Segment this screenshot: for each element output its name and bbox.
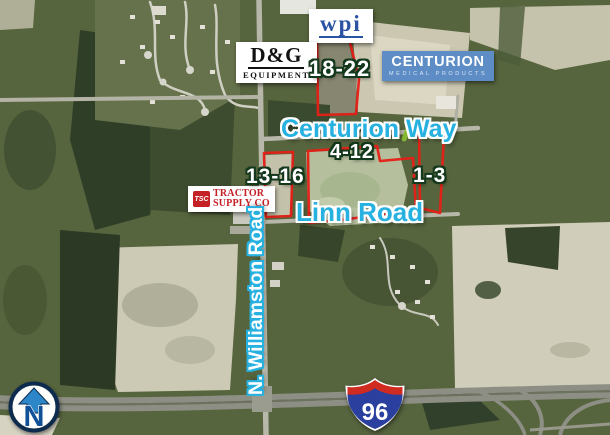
wpi-logo-text: wpi <box>319 12 363 38</box>
lot-label-1-3: 1-3 <box>413 164 446 188</box>
lot-label-18-22: 18-22 <box>309 56 370 82</box>
centurion-medical-logo: CENTURION MEDICAL PRODUCTS <box>382 51 494 81</box>
wpi-logo: wpi <box>309 9 373 43</box>
centurion-name: CENTURION <box>391 55 484 70</box>
lot-label-4-12: 4-12 <box>330 141 374 164</box>
road-label-centurion-way: Centurion Way <box>281 115 456 144</box>
tsc-badge-icon: TSC <box>193 191 210 207</box>
centurion-subtitle: MEDICAL PRODUCTS <box>389 72 487 78</box>
lot-label-13-16: 13-16 <box>246 165 305 189</box>
dg-equipment-subtitle: EQUIPMENT <box>243 71 310 80</box>
interstate-96-shield: 96 <box>343 376 407 433</box>
compass-north-letter: N <box>24 401 45 433</box>
road-label-linn-road: Linn Road <box>296 197 423 228</box>
road-label-n-williamston-road: N. Williamston Road <box>245 209 269 395</box>
interstate-route-number: 96 <box>362 399 389 426</box>
aerial-site-map: wpi D&G EQUIPMENT CENTURION MEDICAL PROD… <box>0 0 610 435</box>
dg-equipment-name: D&G <box>248 45 304 69</box>
dg-equipment-logo: D&G EQUIPMENT <box>236 42 317 83</box>
north-compass-icon: N <box>8 381 60 433</box>
